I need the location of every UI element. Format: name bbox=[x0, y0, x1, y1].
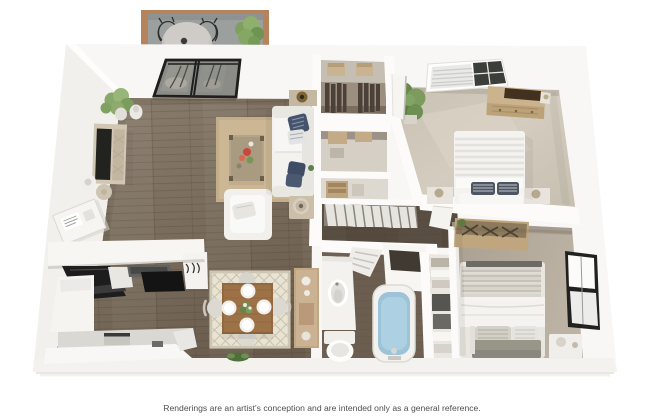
svg-text:Renderings are an artist's con: Renderings are an artist's conception an… bbox=[163, 403, 480, 413]
